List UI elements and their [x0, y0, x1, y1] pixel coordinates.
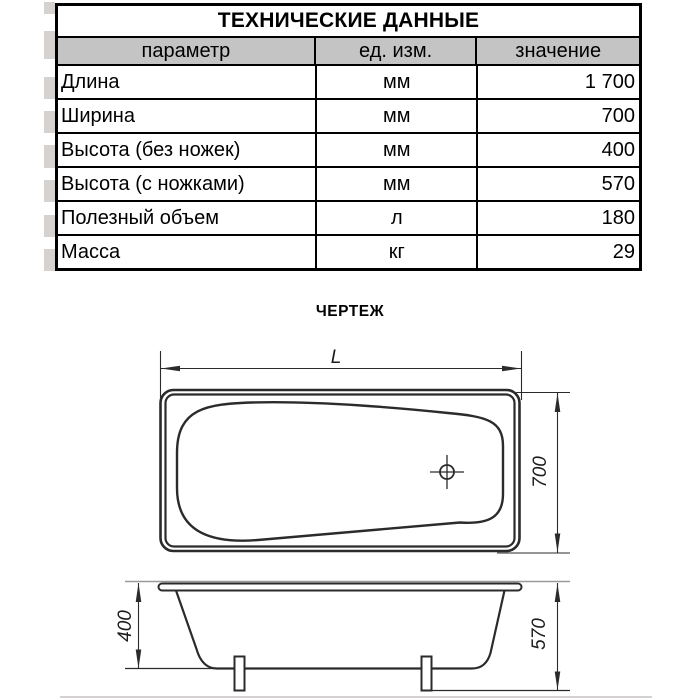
arrowhead-up-icon: [136, 583, 142, 602]
top-view-drawing: L 700: [161, 347, 571, 553]
table-header-row: параметр ед. изм. значение: [58, 38, 639, 66]
arrowhead-up-icon: [555, 393, 561, 412]
tub-leg-right: [422, 657, 432, 691]
value-cell: 400: [478, 134, 639, 166]
page-edge-artifact: [44, 249, 55, 271]
param-cell: Ширина: [58, 100, 317, 132]
page-edge-artifact: [44, 31, 55, 59]
table-row: Полезный объем л 180: [58, 202, 639, 236]
unit-cell: л: [317, 202, 478, 234]
page-edge-artifact: [44, 77, 55, 99]
page-edge-artifact: [44, 111, 55, 133]
drawing-section-title: ЧЕРТЕЖ: [0, 303, 700, 321]
table-row: Высота (без ножек) мм 400: [58, 134, 639, 168]
dimension-inner-height: 400: [115, 583, 141, 669]
param-cell: Длина: [58, 66, 317, 98]
arrowhead-right-icon: [502, 366, 521, 372]
unit-cell: мм: [317, 168, 478, 200]
table-title: ТЕХНИЧЕСКИЕ ДАННЫЕ: [58, 6, 639, 38]
tub-side-outline: [176, 591, 505, 669]
tub-rim-side: [159, 584, 522, 591]
arrowhead-down-icon: [555, 672, 561, 691]
spec-sheet: { "table": { "title": "ТЕХНИЧЕСКИЕ ДАННЫ…: [0, 0, 700, 700]
page-edge-artifact: [44, 2, 55, 14]
unit-cell: мм: [317, 134, 478, 166]
dimension-total-height: 570: [529, 583, 560, 691]
column-header-unit: ед. изм.: [316, 38, 478, 64]
unit-cell: мм: [317, 100, 478, 132]
value-cell: 180: [478, 202, 639, 234]
arrowhead-down-icon: [136, 650, 142, 669]
table-row: Высота (с ножками) мм 570: [58, 168, 639, 202]
column-header-value: значение: [477, 38, 639, 64]
param-cell: Масса: [58, 236, 317, 268]
width-dimension-label: 700: [530, 456, 551, 488]
param-cell: Высота (с ножками): [58, 168, 317, 200]
tub-leg-left: [235, 657, 245, 691]
value-cell: 29: [478, 236, 639, 268]
arrowhead-left-icon: [161, 366, 180, 372]
value-cell: 700: [478, 100, 639, 132]
param-cell: Высота (без ножек): [58, 134, 317, 166]
param-cell: Полезный объем: [58, 202, 317, 234]
table-row: Ширина мм 700: [58, 100, 639, 134]
column-header-parameter: параметр: [58, 38, 316, 64]
table-row: Масса кг 29: [58, 236, 639, 268]
page-edge-artifact: [44, 145, 55, 168]
side-view-drawing: 400 570: [60, 582, 652, 698]
table-row: Длина мм 1 700: [58, 66, 639, 100]
bathtub-drawing: L 700 400: [0, 330, 700, 700]
page-edge-artifact: [44, 180, 55, 202]
tech-data-table: ТЕХНИЧЕСКИЕ ДАННЫЕ параметр ед. изм. зна…: [55, 3, 642, 271]
value-cell: 570: [478, 168, 639, 200]
unit-cell: мм: [317, 66, 478, 98]
unit-cell: кг: [317, 236, 478, 268]
total-height-dimension-label: 570: [529, 618, 550, 650]
inner-height-dimension-label: 400: [115, 610, 136, 642]
value-cell: 1 700: [478, 66, 639, 98]
length-dimension-label: L: [331, 347, 342, 368]
arrowhead-down-icon: [555, 534, 561, 553]
arrowhead-up-icon: [555, 584, 561, 603]
page-edge-artifact: [44, 215, 55, 237]
